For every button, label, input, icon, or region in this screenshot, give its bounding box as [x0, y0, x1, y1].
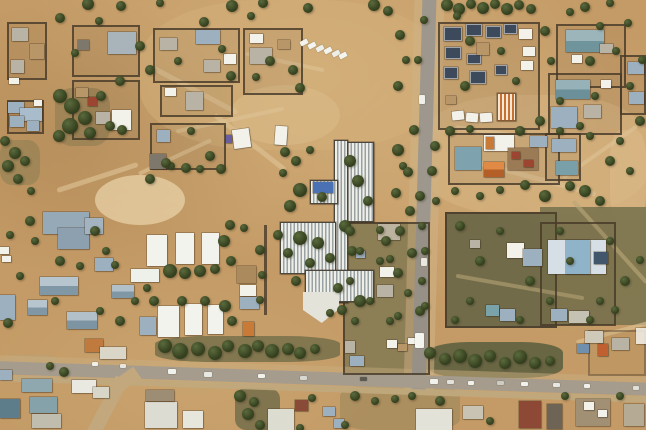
building	[577, 344, 589, 353]
tree	[210, 264, 220, 274]
tree	[556, 97, 564, 105]
building	[466, 24, 482, 36]
tree	[306, 146, 314, 154]
tree	[25, 216, 35, 226]
vehicle	[258, 374, 265, 378]
tree	[432, 197, 440, 205]
tree	[424, 347, 436, 359]
tree	[545, 356, 555, 366]
tree	[303, 3, 313, 13]
tree	[293, 183, 307, 197]
white-tent	[176, 233, 194, 264]
building	[30, 44, 44, 59]
white-tent	[158, 306, 179, 337]
building	[183, 411, 203, 428]
vehicle	[497, 381, 504, 385]
tree	[16, 272, 24, 280]
tree	[249, 397, 259, 407]
tree	[576, 122, 584, 130]
tree	[156, 0, 164, 7]
building	[636, 328, 646, 344]
tree	[392, 144, 404, 156]
building	[226, 135, 232, 143]
tree	[2, 160, 14, 172]
vehicle	[447, 380, 454, 384]
building	[295, 400, 308, 411]
tree	[218, 45, 226, 53]
tree	[256, 296, 264, 304]
tree	[451, 187, 459, 195]
tree	[291, 276, 301, 286]
tree	[46, 362, 54, 370]
building	[380, 267, 394, 277]
building	[224, 54, 236, 64]
tree	[626, 167, 634, 175]
solar-roof-building	[444, 27, 462, 41]
tree	[496, 227, 504, 235]
building	[160, 38, 177, 50]
tree	[163, 264, 177, 278]
building	[556, 161, 578, 175]
tree	[393, 81, 403, 91]
building	[524, 160, 533, 167]
tree	[439, 353, 451, 365]
tree	[606, 0, 614, 7]
tree	[540, 26, 550, 36]
tree	[403, 167, 413, 177]
tree	[580, 2, 590, 12]
tree	[477, 2, 489, 14]
tree	[325, 253, 335, 263]
white-tent	[202, 233, 219, 264]
vehicle	[360, 377, 367, 381]
tree	[391, 188, 401, 198]
tree	[460, 81, 470, 91]
tree	[283, 248, 293, 258]
building	[78, 40, 89, 50]
building	[495, 65, 507, 75]
tree	[484, 350, 496, 362]
building	[504, 24, 517, 34]
building	[463, 406, 483, 419]
tree	[181, 163, 191, 173]
building	[523, 249, 542, 266]
tree	[513, 350, 527, 364]
tree	[187, 127, 195, 135]
tree	[117, 125, 127, 135]
tree	[547, 57, 555, 65]
tree	[638, 56, 646, 64]
tree	[394, 312, 402, 320]
tree	[242, 408, 254, 420]
tree	[356, 247, 364, 255]
tree	[514, 0, 524, 10]
tree	[381, 236, 391, 246]
tree	[499, 357, 511, 369]
tree	[115, 76, 125, 86]
tree	[591, 92, 599, 100]
building	[556, 80, 590, 99]
building	[486, 26, 501, 38]
tree	[516, 316, 524, 324]
tree	[115, 316, 125, 326]
building	[584, 105, 601, 118]
tree	[383, 6, 393, 16]
tree	[102, 247, 110, 255]
tree	[520, 180, 530, 190]
compound-wall	[264, 225, 267, 315]
tree	[395, 226, 405, 236]
tree	[371, 397, 379, 405]
vehicle	[553, 383, 560, 387]
building	[243, 322, 254, 336]
building	[624, 404, 644, 426]
tree	[626, 82, 634, 90]
tree	[337, 305, 347, 315]
tree	[455, 221, 465, 231]
tree	[255, 245, 265, 255]
building	[387, 340, 397, 348]
building	[11, 60, 24, 73]
building	[585, 331, 603, 343]
tree	[219, 300, 231, 312]
building	[28, 300, 47, 315]
vehicle	[300, 376, 307, 380]
tree	[216, 164, 226, 174]
tree	[308, 394, 316, 402]
tree	[445, 126, 455, 136]
vehicle	[168, 369, 176, 374]
tree	[295, 83, 305, 93]
tree	[427, 166, 437, 176]
building	[186, 92, 203, 110]
tree	[226, 256, 236, 266]
tree	[466, 125, 474, 133]
building	[350, 356, 364, 366]
tree	[280, 147, 290, 157]
tree	[441, 0, 453, 11]
ground-patch	[95, 175, 185, 225]
tree	[565, 181, 575, 191]
tree	[53, 130, 65, 142]
tree	[616, 392, 624, 400]
vehicle	[419, 95, 425, 104]
tree	[476, 192, 484, 200]
tree	[317, 192, 327, 202]
tree	[252, 340, 264, 352]
tree	[9, 147, 21, 159]
building	[600, 44, 613, 53]
tree	[616, 137, 624, 145]
tree	[196, 165, 204, 173]
tree	[145, 65, 155, 75]
satellite-image	[0, 0, 646, 430]
tree	[191, 342, 205, 356]
building	[145, 402, 177, 428]
tree	[200, 296, 210, 306]
tree	[486, 417, 494, 425]
tree	[525, 276, 535, 286]
building	[551, 107, 577, 128]
tree	[288, 65, 298, 75]
tree	[177, 296, 187, 306]
tree	[453, 12, 461, 20]
tree	[376, 226, 384, 234]
building	[67, 312, 97, 329]
building	[512, 152, 520, 159]
tree	[435, 396, 445, 406]
tree	[310, 344, 320, 354]
tree	[606, 237, 614, 245]
tree	[354, 295, 366, 307]
building	[27, 121, 39, 131]
building	[470, 240, 480, 248]
building	[146, 390, 174, 401]
building	[601, 80, 611, 88]
tree	[293, 231, 307, 245]
building	[0, 295, 15, 320]
building	[467, 54, 481, 64]
tree	[116, 1, 126, 11]
building	[112, 285, 134, 298]
tree	[404, 289, 412, 297]
building	[629, 92, 644, 104]
tree	[84, 127, 96, 139]
building	[232, 128, 251, 149]
truck	[415, 333, 424, 348]
tree	[363, 196, 373, 206]
tree	[352, 175, 364, 187]
tree	[55, 256, 65, 266]
building	[445, 47, 461, 59]
tree	[305, 258, 315, 268]
tree	[225, 220, 235, 230]
tree	[234, 390, 246, 402]
tree	[556, 227, 564, 235]
building	[34, 100, 42, 106]
tree	[105, 121, 115, 131]
tree	[465, 36, 475, 46]
building	[598, 410, 607, 417]
building	[523, 47, 535, 56]
tree	[620, 276, 630, 286]
building	[93, 387, 109, 398]
building	[32, 414, 61, 428]
building	[274, 126, 287, 146]
tree	[497, 47, 505, 55]
tree	[158, 339, 172, 353]
tree	[31, 237, 39, 245]
tree	[512, 77, 520, 85]
building	[551, 309, 567, 321]
tree	[391, 395, 399, 403]
tree	[466, 297, 474, 305]
building	[250, 34, 263, 43]
tree	[265, 56, 275, 66]
building	[444, 67, 458, 79]
tree	[453, 349, 467, 363]
tree	[414, 56, 422, 64]
building	[416, 409, 452, 430]
building	[486, 305, 499, 316]
building	[598, 344, 608, 356]
tree	[20, 156, 30, 166]
tree	[393, 268, 403, 278]
tree	[566, 8, 574, 16]
tree	[395, 30, 405, 40]
tree	[205, 151, 215, 161]
building	[10, 116, 24, 127]
tree	[296, 424, 304, 430]
tree	[515, 126, 525, 136]
building	[2, 256, 11, 262]
building	[9, 78, 19, 84]
tree	[55, 13, 65, 23]
building	[12, 28, 28, 41]
tree	[208, 346, 222, 360]
tree	[284, 200, 296, 212]
tree	[344, 155, 356, 167]
tree	[341, 421, 349, 429]
tree	[265, 344, 279, 358]
tree	[566, 257, 574, 265]
tree	[95, 17, 103, 25]
tree	[64, 98, 80, 114]
tree	[255, 420, 265, 430]
tree	[579, 185, 591, 197]
building	[278, 40, 290, 49]
building	[455, 147, 481, 170]
tree	[62, 118, 78, 134]
building	[398, 344, 407, 351]
tree	[636, 256, 644, 264]
building	[480, 113, 493, 123]
building	[237, 266, 256, 283]
tree	[345, 226, 355, 236]
tree	[596, 22, 604, 30]
tree	[51, 297, 59, 305]
white-tent	[147, 235, 167, 266]
tree	[222, 340, 234, 352]
building	[477, 43, 489, 55]
vehicle	[421, 258, 427, 266]
tree	[238, 344, 252, 358]
tree	[226, 71, 236, 81]
building	[584, 402, 594, 410]
tree	[624, 19, 632, 27]
building	[0, 370, 12, 380]
tree	[409, 125, 419, 135]
tree	[174, 57, 182, 65]
building	[157, 130, 170, 142]
building	[196, 30, 220, 44]
tree	[13, 174, 23, 184]
tree	[350, 391, 360, 401]
tree	[161, 158, 171, 168]
tree	[333, 283, 343, 293]
tree	[529, 357, 541, 369]
tree	[490, 0, 500, 9]
tree	[27, 187, 35, 195]
building	[552, 139, 576, 152]
tree	[546, 297, 554, 305]
building	[612, 338, 629, 350]
building	[572, 55, 582, 63]
tree	[351, 317, 359, 325]
tree	[96, 307, 104, 315]
tree	[226, 0, 238, 12]
tree	[612, 47, 620, 55]
building	[519, 29, 532, 39]
tree	[407, 248, 417, 258]
building	[0, 399, 20, 418]
orange-gable-building	[484, 162, 504, 177]
building	[22, 379, 52, 392]
tree	[418, 277, 426, 285]
building	[268, 409, 294, 430]
tree	[421, 302, 429, 310]
tree	[586, 316, 594, 324]
tree	[420, 16, 428, 24]
tree	[611, 306, 619, 314]
tree	[227, 316, 237, 326]
tree	[194, 265, 206, 277]
tree	[346, 277, 354, 285]
building	[470, 71, 486, 84]
tree	[586, 132, 594, 140]
tree	[258, 271, 266, 279]
tree	[415, 191, 425, 201]
tree	[386, 317, 394, 325]
tree	[59, 367, 69, 377]
tree	[179, 267, 191, 279]
tree	[402, 56, 410, 64]
building	[0, 247, 9, 254]
tree	[421, 247, 429, 255]
orange-striped-building	[497, 93, 516, 121]
tree	[466, 0, 476, 9]
building	[446, 96, 456, 104]
tree	[596, 297, 604, 305]
tree	[96, 91, 106, 101]
vehicle	[584, 384, 590, 388]
tree	[501, 3, 513, 15]
vehicle	[521, 382, 528, 386]
building	[100, 347, 126, 359]
tree	[145, 174, 155, 184]
tree	[366, 297, 374, 305]
building	[323, 407, 335, 416]
tree	[135, 41, 145, 51]
building	[204, 60, 220, 72]
tree	[405, 206, 415, 216]
building	[40, 277, 78, 295]
tree	[312, 237, 324, 249]
tree	[273, 230, 283, 240]
building	[140, 317, 156, 335]
tree	[291, 156, 301, 166]
tree	[326, 309, 334, 317]
building	[452, 110, 465, 120]
tree	[386, 255, 394, 263]
tree	[111, 261, 119, 269]
building	[547, 404, 562, 429]
tree	[294, 347, 306, 359]
tree	[78, 111, 92, 125]
tree	[430, 141, 440, 151]
tree	[539, 190, 551, 202]
tree	[556, 127, 564, 135]
